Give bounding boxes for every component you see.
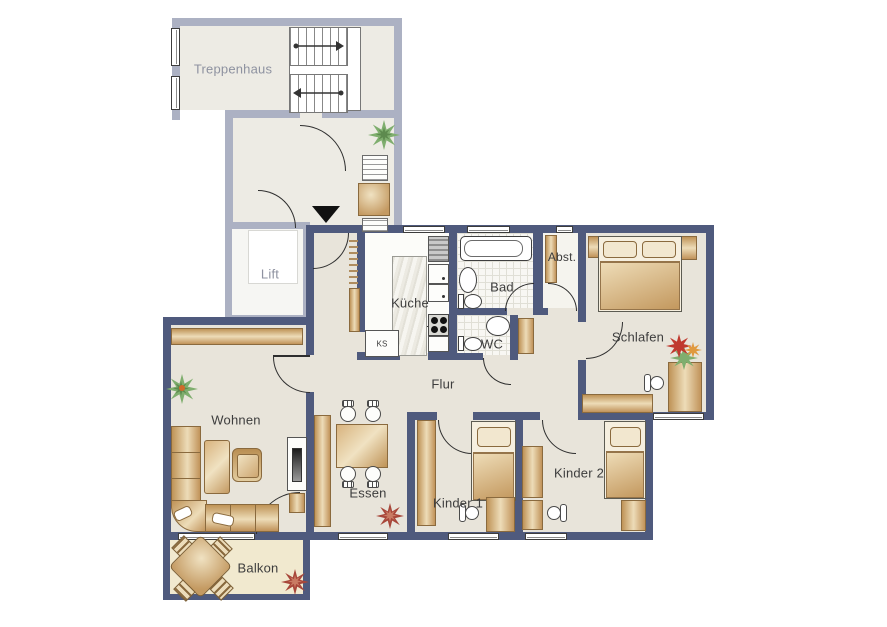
blanket xyxy=(606,451,644,498)
wall xyxy=(578,412,653,420)
room-label-lift: Lift xyxy=(261,267,279,282)
room-label-schlafen: Schlafen xyxy=(612,330,664,345)
dining-chair xyxy=(365,406,381,422)
window xyxy=(171,76,180,110)
cabinet xyxy=(314,415,331,527)
desk-chair xyxy=(547,506,561,520)
stair-flight-down xyxy=(289,74,348,113)
room-label-flur: Flur xyxy=(431,377,454,392)
kitchen-drainer xyxy=(428,236,449,262)
coffee-table xyxy=(204,440,230,494)
room-label-kinder1: Kinder 1 xyxy=(433,496,483,511)
wall xyxy=(172,18,402,26)
window xyxy=(556,226,573,233)
balcony-wall xyxy=(303,540,310,600)
dining-chair xyxy=(340,406,356,422)
balcony-wall xyxy=(163,540,170,600)
room-label-ks: KS xyxy=(376,340,387,349)
room-label-kueche: Küche xyxy=(391,296,429,311)
wall xyxy=(706,225,714,420)
sideboard xyxy=(582,394,653,413)
wall xyxy=(453,353,483,360)
sofa xyxy=(171,426,201,506)
room-label-kinder2: Kinder 2 xyxy=(554,466,604,481)
radiator xyxy=(349,240,358,290)
hall-table xyxy=(358,183,390,216)
wardrobe xyxy=(522,446,543,498)
kitchen-counter-end xyxy=(428,336,449,352)
toilet xyxy=(464,294,482,309)
bathtub xyxy=(460,236,532,261)
staircase xyxy=(289,27,361,111)
room-label-wc: WC xyxy=(481,337,503,352)
window xyxy=(403,226,445,233)
wall xyxy=(394,125,402,225)
entrance-arrow-icon xyxy=(312,206,340,223)
wall xyxy=(510,315,518,360)
window xyxy=(653,413,704,420)
pillow xyxy=(642,241,676,258)
blanket xyxy=(600,261,680,310)
hall-chair xyxy=(362,218,388,232)
wall xyxy=(645,412,653,540)
wall xyxy=(394,18,402,125)
wall xyxy=(306,392,314,540)
single-bed xyxy=(471,421,516,501)
room-label-balkon: Balkon xyxy=(238,561,279,576)
desk xyxy=(486,497,515,532)
wardrobe xyxy=(518,318,534,354)
desk xyxy=(668,362,702,412)
dining-chair xyxy=(340,466,356,482)
armchair xyxy=(232,448,262,482)
kitchen-sink xyxy=(428,264,449,284)
wall xyxy=(533,308,548,315)
room-label-bad: Bad xyxy=(490,280,514,295)
wall xyxy=(453,308,507,315)
wall xyxy=(533,225,543,315)
stair-arrow-left-icon xyxy=(290,75,347,112)
plant-blossom xyxy=(179,385,185,391)
stair-flight-up xyxy=(289,27,348,66)
wardrobe xyxy=(349,288,360,332)
window xyxy=(171,28,180,66)
pillow xyxy=(603,241,637,258)
cabinet xyxy=(289,493,305,513)
pillow xyxy=(610,427,641,447)
dining-table xyxy=(336,424,388,468)
washbasin xyxy=(486,316,510,336)
window xyxy=(448,533,499,540)
wall xyxy=(163,317,171,540)
single-bed xyxy=(604,421,646,499)
wall xyxy=(407,412,415,540)
room-label-abst: Abst. xyxy=(548,250,576,264)
wall xyxy=(578,225,586,322)
wall xyxy=(225,110,233,229)
tv-board xyxy=(287,437,307,491)
wall xyxy=(163,317,314,325)
wall xyxy=(225,222,232,322)
toilet xyxy=(464,337,482,351)
window xyxy=(467,226,510,233)
stove xyxy=(428,314,449,336)
wall xyxy=(449,233,457,360)
cabinet xyxy=(621,500,646,531)
floor-plan: Treppenhaus Lift Küche KS Bad WC Abst. S… xyxy=(0,0,887,627)
dining-chair xyxy=(365,466,381,482)
desk-chair xyxy=(650,376,664,390)
room-label-essen: Essen xyxy=(349,486,386,501)
wall xyxy=(473,412,540,420)
tv-screen xyxy=(292,448,302,482)
kitchen-sink xyxy=(428,284,449,302)
blanket xyxy=(473,452,514,500)
washbasin xyxy=(459,267,477,293)
room-label-wohnen: Wohnen xyxy=(211,413,260,428)
window xyxy=(338,533,388,540)
window xyxy=(525,533,567,540)
cabinet xyxy=(522,500,543,530)
double-bed xyxy=(598,236,682,312)
sideboard xyxy=(171,328,303,345)
hall-chair xyxy=(362,155,388,181)
pillow xyxy=(477,427,511,447)
stair-arrow-right-icon xyxy=(290,28,347,65)
room-label-treppenhaus: Treppenhaus xyxy=(194,62,272,77)
